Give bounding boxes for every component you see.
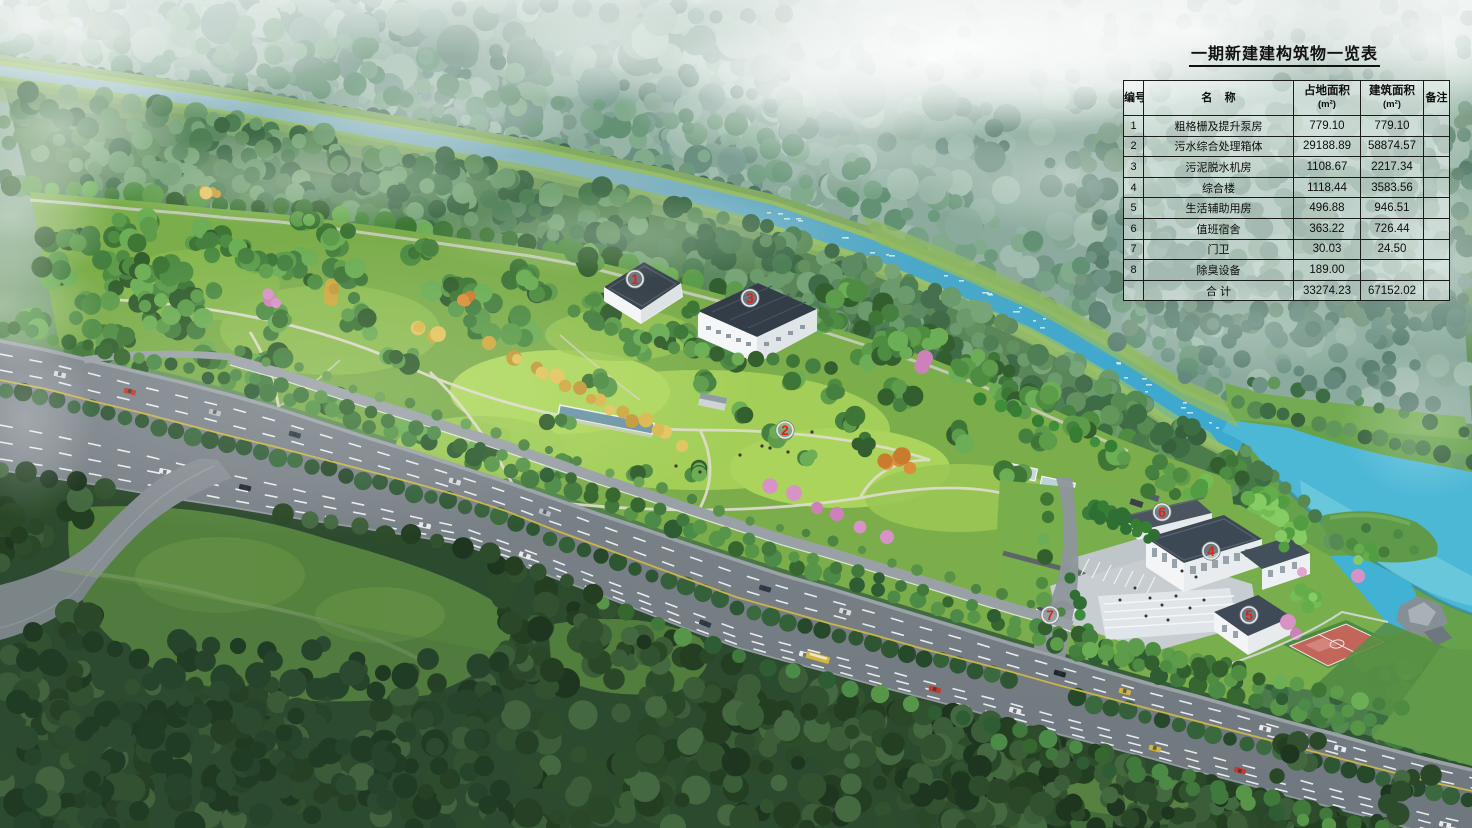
svg-text:6: 6: [1158, 505, 1166, 520]
svg-text:7: 7: [1046, 608, 1054, 623]
svg-text:1: 1: [631, 272, 639, 287]
svg-text:4: 4: [1207, 544, 1215, 559]
svg-text:2: 2: [781, 423, 789, 438]
svg-text:3: 3: [746, 291, 754, 306]
svg-text:5: 5: [1245, 608, 1253, 623]
